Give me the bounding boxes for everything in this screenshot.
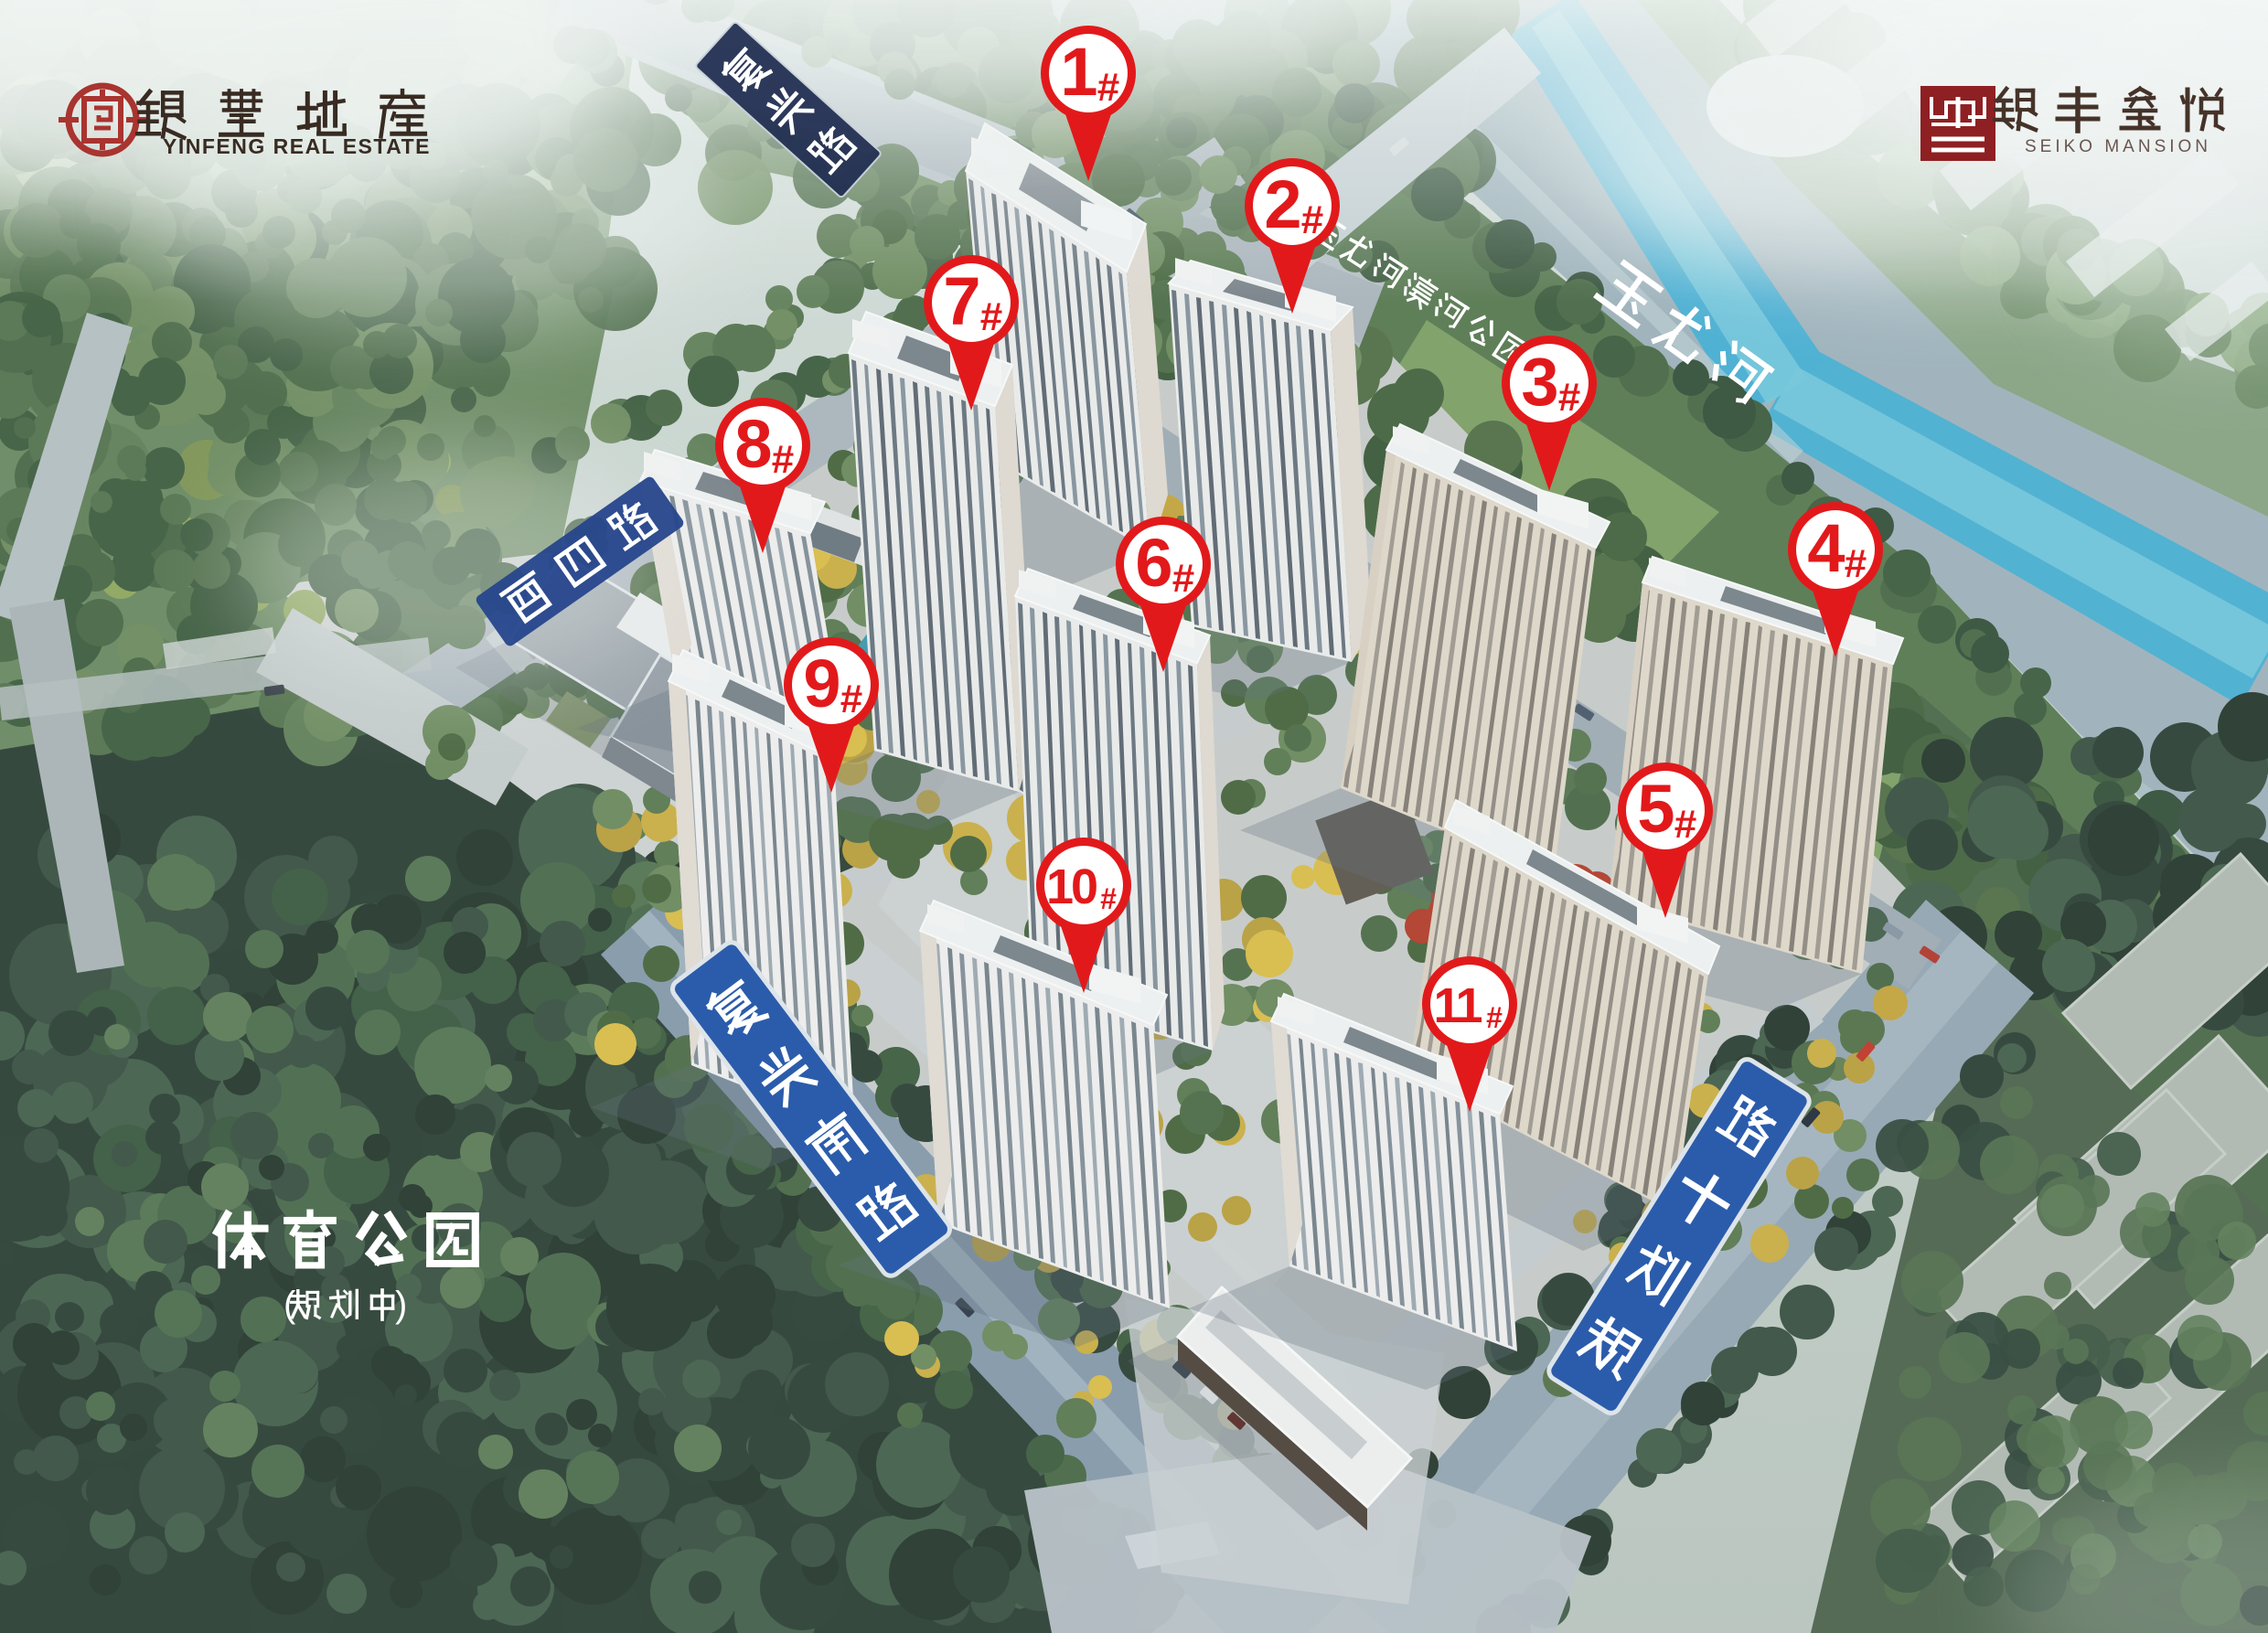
svg-text:SEIKO MANSION: SEIKO MANSION [2025, 137, 2211, 156]
svg-text:#: # [1301, 197, 1323, 242]
svg-text:#: # [1674, 802, 1696, 847]
svg-text:#: # [840, 677, 862, 721]
svg-text:7: 7 [943, 263, 980, 339]
svg-text:#: # [772, 437, 794, 482]
svg-text:#: # [1558, 375, 1580, 420]
svg-text:6: 6 [1135, 525, 1172, 601]
svg-text:8: 8 [734, 406, 772, 482]
svg-text:11: 11 [1433, 978, 1482, 1033]
svg-text:10: 10 [1046, 859, 1097, 914]
svg-text:#: # [980, 294, 1002, 339]
svg-text:3: 3 [1521, 344, 1558, 420]
svg-text:2: 2 [1264, 166, 1301, 242]
svg-text:): ) [395, 1285, 407, 1325]
svg-text:5: 5 [1637, 771, 1674, 847]
svg-text:(: ( [283, 1285, 296, 1325]
svg-text:9: 9 [803, 646, 840, 721]
svg-text:#: # [1486, 1001, 1503, 1034]
svg-text:#: # [1845, 541, 1867, 586]
svg-text:1: 1 [1060, 34, 1097, 110]
svg-text:YINFENG REAL ESTATE: YINFENG REAL ESTATE [163, 134, 431, 158]
svg-text:#: # [1097, 65, 1119, 110]
svg-text:4: 4 [1807, 510, 1845, 586]
svg-text:#: # [1172, 556, 1194, 601]
svg-text:#: # [1100, 882, 1117, 915]
